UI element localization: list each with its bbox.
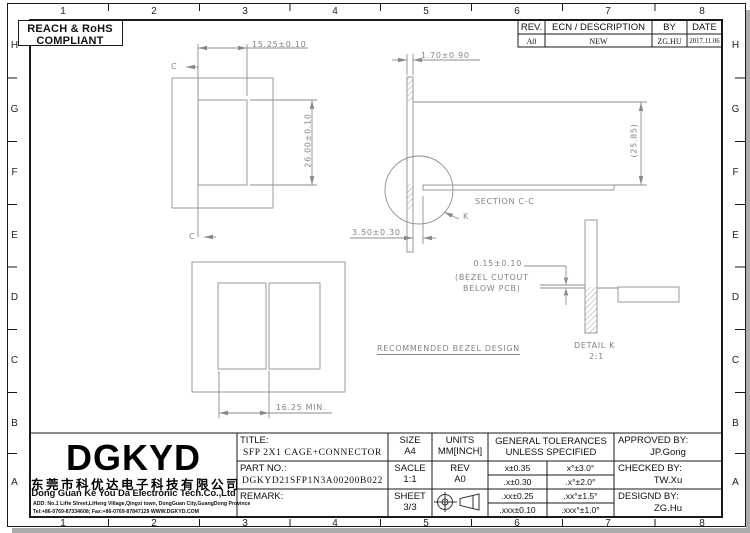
dim-cutout-gap: 0.15±0.10 [460, 259, 522, 268]
front-view [172, 44, 317, 237]
detail-ref-label: K [463, 212, 469, 221]
drawing-sheet: 1 2 3 4 5 6 7 8 1 2 3 4 5 6 7 8 H G F E … [0, 0, 750, 533]
dim-bezel-offset: 3.50±0.30 [352, 228, 401, 237]
ecn-value: NEW [545, 37, 652, 46]
dim-bezel-thickness: 1.70±0.90 [421, 51, 470, 60]
by-header: BY [652, 22, 687, 33]
grid-row-left-f: F [8, 167, 21, 178]
size-value: A4 [388, 446, 432, 457]
bezel-design-caption: RECOMMENDED BEZEL DESIGN [377, 344, 520, 355]
section-mark-bottom: C [189, 232, 195, 241]
tolerance-linear-3: .xx±0.25 [488, 491, 547, 501]
rev-header: REV. [518, 22, 545, 33]
rev-label: REV [432, 463, 488, 474]
company-name-en: Dong Guan Ke You Da Electronic Tech.Co.,… [31, 488, 236, 499]
sheet-shadow-right [746, 10, 750, 533]
detail-note-line1: (BEZEL CUTOUT [455, 273, 529, 282]
size-label: SIZE [388, 435, 432, 446]
grid-col-top-3: 3 [235, 6, 255, 17]
tolerance-linear-2: .x±0.30 [488, 477, 547, 487]
dim-bezel-min-width: 16.25 MIN. [276, 403, 326, 412]
grid-row-left-d: D [8, 292, 21, 303]
title-label: TITLE: [240, 435, 269, 446]
tolerance-header-line2: UNLESS SPECIFIED [488, 447, 614, 458]
tolerance-linear-4: .xxx±0.10 [488, 505, 547, 515]
compliance-line1: REACH & RoHS [18, 23, 122, 35]
grid-row-left-b: B [8, 418, 21, 429]
company-address: ADD: No.1 LiHe Street,LiHeng Village,Qin… [33, 501, 236, 507]
part-no-value: DGKYD21SFP1N3A00200B022 [237, 476, 388, 486]
grid-col-top-4: 4 [325, 6, 345, 17]
company-contact: Tel:+86-0769-87334608; Fax:+86-0769-8784… [33, 509, 199, 515]
scale-value: 1:1 [388, 474, 432, 485]
dim-cutout-height: 26.00±0.10 [304, 111, 313, 171]
units-label: UNITS [432, 435, 488, 446]
checked-by-label: CHECKED BY: [618, 463, 682, 474]
tolerance-angular-1: x°±3.0° [547, 463, 614, 473]
detail-k-view [524, 220, 679, 333]
by-value: ZG.HU [652, 37, 687, 46]
grid-row-right-b: B [729, 418, 742, 429]
tolerance-angular-3: .xx°±1.5° [547, 491, 614, 501]
section-caption: SECTION C-C [475, 197, 535, 206]
grid-row-right-h: H [729, 40, 742, 51]
projection-symbol-icon [434, 492, 479, 512]
grid-row-right-e: E [729, 230, 742, 241]
sheet-label: SHEET [388, 491, 432, 502]
section-view [350, 54, 647, 252]
grid-row-right-a: A [729, 477, 742, 488]
grid-col-top-5: 5 [416, 6, 436, 17]
approved-by-label: APPROVED BY: [618, 435, 688, 446]
grid-col-top-7: 7 [598, 6, 618, 17]
ecn-header: ECN / DESCRIPTION [545, 22, 652, 33]
dimension-arrowheads [186, 46, 643, 415]
grid-row-left-g: G [8, 104, 21, 115]
tolerance-angular-4: .xxx°±1.0° [547, 505, 614, 515]
bezel-design-view [192, 262, 345, 418]
compliance-line2: COMPLIANT [18, 35, 122, 47]
grid-row-right-c: C [729, 355, 742, 366]
title-value: SFP 2X1 CAGE+CONNECTOR [237, 448, 388, 458]
company-logo: DGKYD [30, 437, 237, 479]
scale-label: SACLE [388, 463, 432, 474]
grid-col-top-2: 2 [144, 6, 164, 17]
detail-scale: 2:1 [589, 352, 604, 361]
sheet-shadow-bottom [12, 528, 750, 533]
dim-ref-height: (25.85) [630, 117, 639, 165]
grid-row-right-d: D [729, 292, 742, 303]
date-value: 2017.11.06 [686, 38, 723, 45]
tolerance-angular-2: .x°±2.0° [547, 477, 614, 487]
dim-cutout-width: 15.25±0.10 [252, 40, 306, 49]
remark-label: REMARK: [240, 491, 283, 502]
approved-by-value: JP.Gong [614, 447, 722, 458]
designed-by-value: ZG.Hu [614, 503, 722, 514]
rev-value-cell: A0 [432, 474, 488, 485]
detail-caption: DETAIL K [574, 341, 615, 350]
tolerance-header-line1: GENERAL TOLERANCES [488, 436, 614, 447]
section-mark-top: C [171, 62, 177, 71]
rev-value: A0 [518, 37, 545, 46]
grid-row-left-a: A [8, 477, 21, 488]
part-no-label: PART NO.: [240, 463, 286, 474]
tolerance-linear-1: x±0.35 [488, 463, 547, 473]
grid-row-left-e: E [8, 230, 21, 241]
checked-by-value: TW.Xu [614, 475, 722, 486]
grid-row-right-f: F [729, 167, 742, 178]
designed-by-label: DESIGND BY: [618, 491, 679, 502]
grid-col-top-1: 1 [53, 6, 73, 17]
grid-col-top-8: 8 [692, 6, 712, 17]
units-value: MM[INCH] [432, 446, 488, 457]
sheet-value: 3/3 [388, 502, 432, 513]
date-header: DATE [687, 22, 722, 33]
grid-row-right-g: G [729, 104, 742, 115]
grid-col-top-6: 6 [507, 6, 527, 17]
grid-row-left-c: C [8, 355, 21, 366]
detail-note-line2: BELOW PCB) [463, 284, 520, 293]
